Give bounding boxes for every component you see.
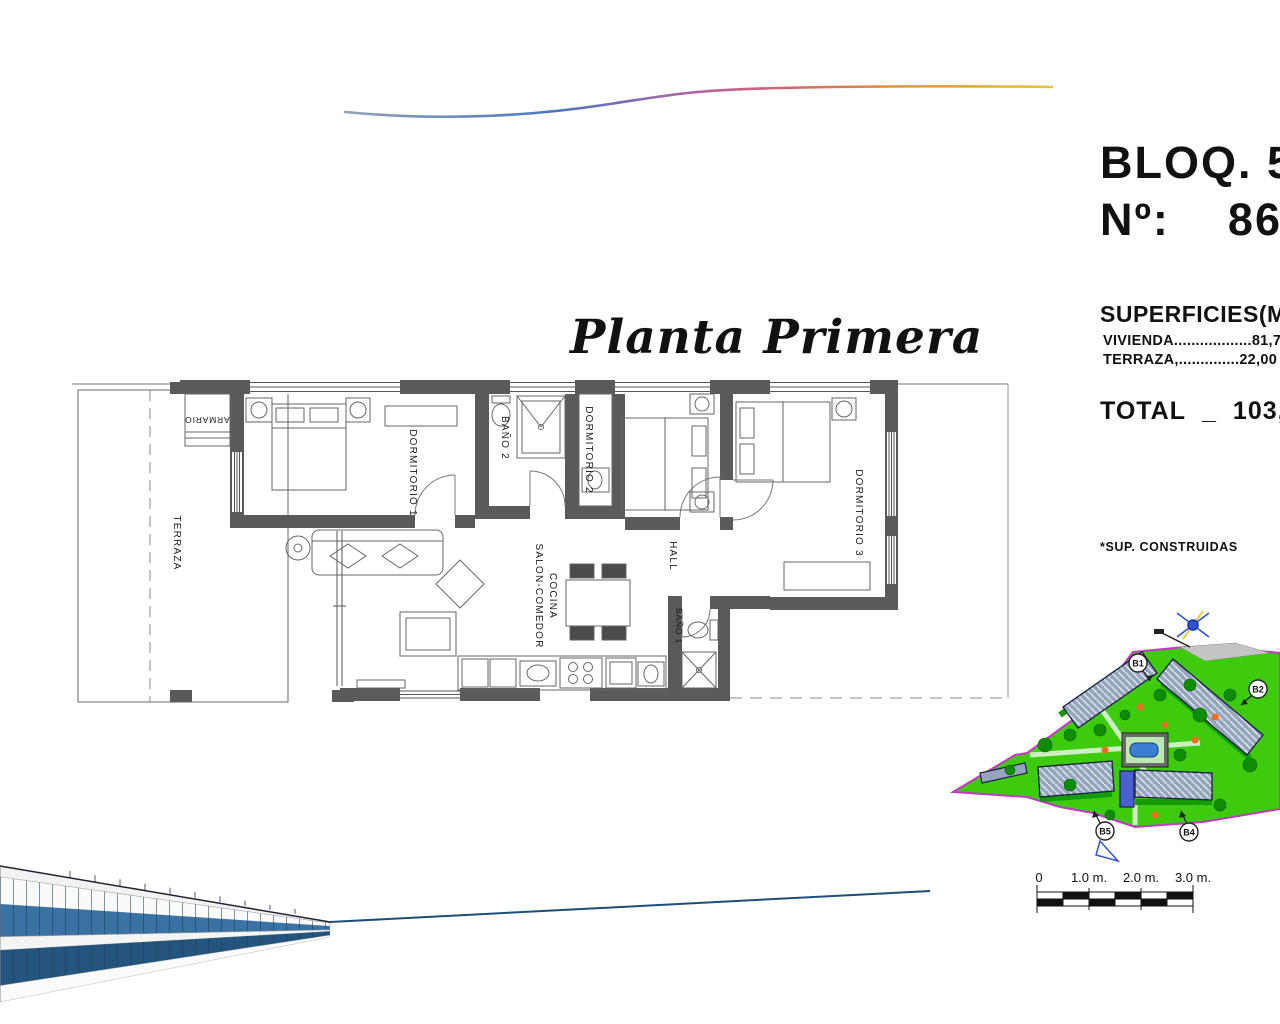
terraza-label: TERRAZA, [1103, 352, 1179, 368]
label-dormitorio3: DORMITORIO 3 [853, 469, 864, 557]
label-salon-line1: SALON-COMEDOR [533, 543, 544, 648]
unit-number-row: Nº:86 [1100, 194, 1280, 246]
building-b4 [1135, 770, 1212, 800]
number-value: 86 [1228, 194, 1280, 245]
siteplan-map: B1 B2 B4 B5 [950, 595, 1280, 865]
label-dormitorio2: DORMITORIO 2 [583, 406, 594, 494]
vivienda-dots: .................. [1174, 333, 1252, 349]
scale-bar-segments [1037, 885, 1193, 913]
b5-flag [1096, 841, 1118, 861]
total-value: 103,75 [1233, 397, 1280, 425]
compass-icon [1177, 611, 1209, 639]
render-horizon-line [330, 891, 930, 922]
scale-tick-3: 3.0 m. [1175, 870, 1211, 885]
page: { "header": { "bloq_label": "BLOQ. 5", "… [0, 0, 1280, 1024]
label-dormitorio1: DORMITORIO 1 [407, 429, 418, 517]
furniture-salon [286, 530, 666, 690]
building-facade [0, 866, 330, 1002]
label-salon-line2: COCINA [547, 573, 558, 619]
label-hall: HALL [667, 541, 678, 571]
terraza-dots: .............. [1179, 352, 1240, 368]
surfaces-heading: SUPERFICIES(M2) [1100, 301, 1280, 328]
label-armario: ARMARIO [184, 415, 229, 425]
surface-row-terraza: TERRAZA,..............22,00 [1103, 352, 1277, 368]
vivienda-value: 81,75* [1252, 333, 1280, 349]
label-bano1: BAÑO 1 [674, 608, 684, 644]
building-render [0, 852, 940, 1024]
label-bano2: BAÑO 2 [499, 416, 512, 460]
terraza-area [78, 382, 354, 702]
surface-row-vivienda: VIVIENDA..................81,75* [1103, 333, 1280, 349]
scale-bar: 0 1.0 m. 2.0 m. 3.0 m. [1025, 868, 1255, 938]
vivienda-label: VIVIENDA [1103, 333, 1174, 349]
gradient-wave-graphic [330, 70, 1090, 140]
floorplan-drawing: TERRAZA ARMARIO DORMITORIO 1 BAÑO 2 DORM… [70, 368, 1010, 718]
marker-b1: B1 [1132, 659, 1144, 669]
scale-tick-1: 1.0 m. [1071, 870, 1107, 885]
label-terraza: TERRAZA [171, 515, 182, 570]
terraza-value: 22,00 [1239, 352, 1277, 368]
scale-tick-2: 2.0 m. [1123, 870, 1159, 885]
marker-b5: B5 [1099, 827, 1111, 837]
surfaces-footnote: *SUP. CONSTRUIDAS [1100, 540, 1238, 554]
number-label: Nº: [1100, 194, 1170, 245]
total-label: TOTAL [1100, 397, 1186, 425]
total-separator: _ [1202, 397, 1217, 425]
marker-b2: B2 [1252, 685, 1264, 695]
scale-bar-labels: 0 1.0 m. 2.0 m. 3.0 m. [1035, 870, 1211, 885]
scale-tick-0: 0 [1035, 870, 1042, 885]
furniture-dormitorio3 [736, 398, 870, 590]
furniture-dormitorio2 [622, 394, 714, 512]
furniture-dormitorio1 [246, 398, 457, 490]
site-pool [1122, 733, 1168, 767]
plan-title: Planta Primera [570, 310, 983, 365]
total-row: TOTAL_103,75 [1100, 397, 1280, 426]
marker-b4: B4 [1183, 828, 1195, 838]
block-label: BLOQ. 5 [1100, 137, 1280, 189]
